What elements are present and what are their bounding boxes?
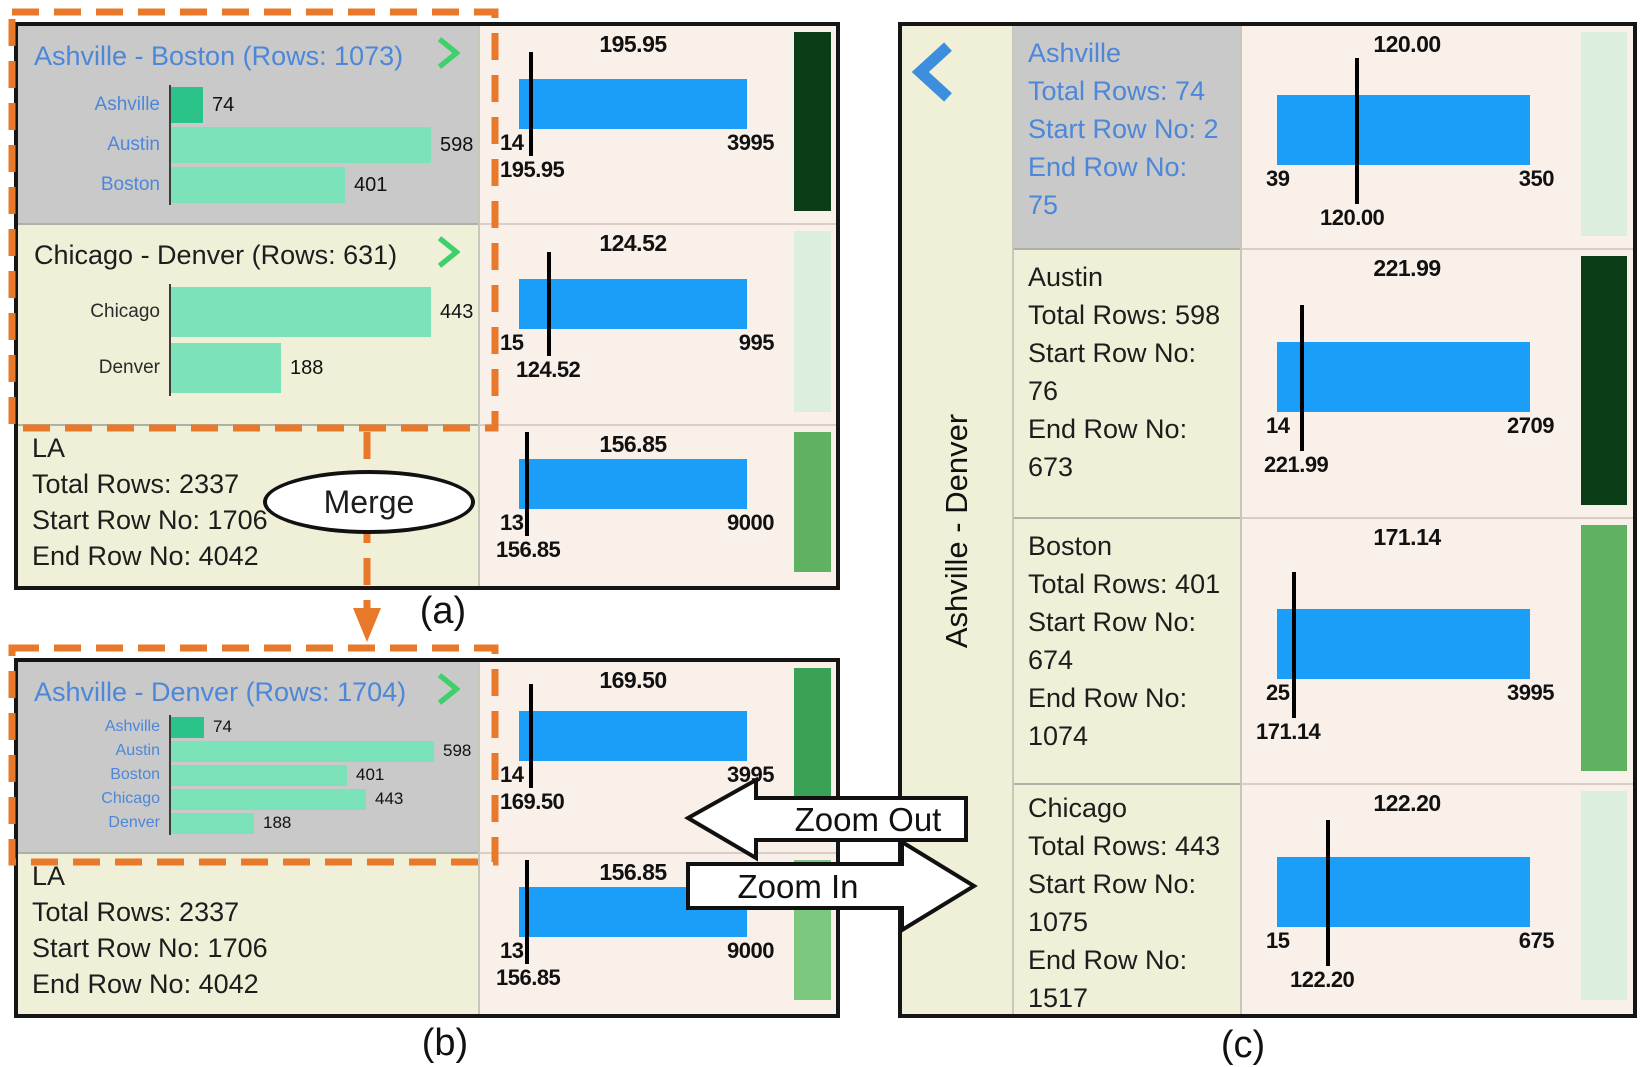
figure-label-c: (c) xyxy=(1198,1024,1288,1067)
median-line xyxy=(529,684,533,788)
bar xyxy=(171,741,434,762)
density-strip xyxy=(794,432,831,572)
bar xyxy=(171,343,281,393)
city-end-row-label: End Row No: xyxy=(1028,148,1234,186)
range-bar xyxy=(519,887,747,937)
group-header[interactable]: Ashville - Denver (Rows: 1704) xyxy=(18,662,478,713)
density-strip xyxy=(794,231,831,412)
city-end-row-label: End Row No: xyxy=(1028,679,1234,717)
bar-value: 598 xyxy=(440,134,473,157)
merge-annotation: Merge xyxy=(263,470,475,534)
panel-b: Ashville - Denver (Rows: 1704) Ashville … xyxy=(14,658,840,1018)
density-strip xyxy=(1581,525,1627,771)
range-bar xyxy=(1277,95,1530,165)
bar-value: 401 xyxy=(356,765,384,785)
city-end-row-value: 673 xyxy=(1028,448,1234,486)
city-total-rows: Total Rows: 598 xyxy=(1028,296,1234,334)
bar-row: Chicago 443 xyxy=(18,787,478,811)
bar-row: Austin 598 xyxy=(18,739,478,763)
chevron-right-icon[interactable] xyxy=(436,36,460,77)
panel-b-group-list: Ashville - Denver (Rows: 1704) Ashville … xyxy=(18,662,478,1014)
bar-label: Denver xyxy=(18,357,169,379)
range-bar xyxy=(519,279,747,329)
panel-c-city-list: Ashville Total Rows: 74 Start Row No: 2 … xyxy=(1012,26,1240,1014)
min-value: 14 xyxy=(1266,413,1289,439)
city-row-austin[interactable]: Austin Total Rows: 598 Start Row No: 76 … xyxy=(1014,248,1240,517)
city-name: Boston xyxy=(1028,527,1234,565)
median-value: 169.50 xyxy=(500,789,564,815)
figure-label-a: (a) xyxy=(398,590,488,633)
bar-label: Austin xyxy=(18,742,169,760)
bar-label: Chicago xyxy=(18,301,169,323)
panel-c-nav-column: Ashville - Denver xyxy=(902,26,1012,1014)
bar-row: Boston 401 xyxy=(18,763,478,787)
city-end-row-value: 75 xyxy=(1028,186,1234,224)
bar-label: Chicago xyxy=(18,790,169,808)
bar-label: Boston xyxy=(18,174,169,196)
city-start-row-label: Start Row No: xyxy=(1028,865,1234,903)
city-name: Ashville xyxy=(1028,34,1234,72)
bar-row: Denver 188 xyxy=(18,811,478,835)
max-value: 3995 xyxy=(710,762,774,788)
max-value: 9000 xyxy=(710,938,774,964)
summary-city: LA xyxy=(32,430,478,466)
city-start-row-value: 1075 xyxy=(1028,903,1234,941)
group-title: Ashville - Denver (Rows: 1704) xyxy=(34,677,406,708)
bar-value: 188 xyxy=(290,357,323,380)
city-start-row-value: 674 xyxy=(1028,641,1234,679)
bar-label: Ashville xyxy=(18,718,169,736)
max-value: 9000 xyxy=(710,510,774,536)
bar-value: 401 xyxy=(354,174,387,197)
panel-c: Ashville - Denver Ashville Total Rows: 7… xyxy=(898,22,1637,1018)
city-name: Chicago xyxy=(1028,789,1234,827)
density-strip xyxy=(1581,791,1627,1000)
range-chart-cell: 156.85 13 9000 156.85 xyxy=(480,852,836,1012)
max-value: 3995 xyxy=(710,130,774,156)
density-strip xyxy=(1581,256,1627,505)
bar xyxy=(171,127,431,163)
median-value: 221.99 xyxy=(1264,452,1328,478)
city-start-row-label: Start Row No: xyxy=(1028,603,1234,641)
range-chart-cell: 120.00 39 350 120.00 xyxy=(1242,26,1633,248)
bar-value: 443 xyxy=(440,301,473,324)
bar-row: Ashville 74 xyxy=(18,85,478,125)
city-start-row: Start Row No: 2 xyxy=(1028,110,1234,148)
range-bar xyxy=(1277,342,1530,412)
median-line xyxy=(525,860,529,964)
density-strip xyxy=(794,860,831,1000)
city-name: Austin xyxy=(1028,258,1234,296)
bar xyxy=(171,87,203,123)
max-value: 350 xyxy=(1490,166,1554,192)
range-chart-cell: 124.52 15 995 124.52 xyxy=(480,223,836,424)
median-value: 156.85 xyxy=(496,537,560,563)
chart-top-value: 169.50 xyxy=(480,667,786,694)
median-value: 195.95 xyxy=(500,157,564,183)
chart-top-value: 124.52 xyxy=(480,230,786,257)
merge-label: Merge xyxy=(324,484,415,521)
bar xyxy=(171,765,347,786)
city-start-row-value: 76 xyxy=(1028,372,1234,410)
max-value: 995 xyxy=(710,330,774,356)
range-bar xyxy=(519,79,747,129)
median-line xyxy=(1326,820,1330,966)
median-value: 156.85 xyxy=(496,965,560,991)
range-bar xyxy=(1277,857,1530,927)
min-value: 15 xyxy=(500,330,523,356)
range-chart-cell: 169.50 14 3995 169.50 xyxy=(480,662,836,852)
city-total-rows: Total Rows: 443 xyxy=(1028,827,1234,865)
range-bar xyxy=(519,711,747,761)
density-strip xyxy=(1581,32,1627,236)
chevron-right-icon[interactable] xyxy=(436,672,460,713)
summary-total-rows: Total Rows: 2337 xyxy=(32,894,478,930)
bar xyxy=(171,717,204,738)
min-value: 39 xyxy=(1266,166,1289,192)
city-total-rows: Total Rows: 74 xyxy=(1028,72,1234,110)
bar-value: 598 xyxy=(443,741,471,761)
panel-b-range-charts: 169.50 14 3995 169.50 156.85 13 9000 156… xyxy=(478,662,836,1014)
bar-row: Ashville 74 xyxy=(18,715,478,739)
range-chart-cell: 156.85 13 9000 156.85 xyxy=(480,424,836,584)
bar-label: Austin xyxy=(18,134,169,156)
group-row-la[interactable]: LA Total Rows: 2337 Start Row No: 1706 E… xyxy=(18,852,478,1012)
min-value: 13 xyxy=(500,938,523,964)
summary-end-row: End Row No: 4042 xyxy=(32,538,478,574)
bar xyxy=(171,287,431,337)
city-total-rows: Total Rows: 401 xyxy=(1028,565,1234,603)
median-line xyxy=(1300,305,1304,451)
group-header[interactable]: Chicago - Denver (Rows: 631) xyxy=(18,225,478,278)
bar-row: Boston 401 xyxy=(18,165,478,205)
group-header[interactable]: Ashville - Boston (Rows: 1073) xyxy=(18,26,478,79)
median-value: 124.52 xyxy=(516,357,580,383)
chart-top-value: 120.00 xyxy=(1242,31,1572,58)
median-line xyxy=(1292,572,1296,718)
bar-value: 74 xyxy=(212,94,234,117)
city-end-row-value: 1074 xyxy=(1028,717,1234,755)
range-chart-cell: 221.99 14 2709 221.99 xyxy=(1242,248,1633,517)
group-vertical-title: Ashville - Denver xyxy=(939,414,975,648)
city-row-chicago[interactable]: Chicago Total Rows: 443 Start Row No: 10… xyxy=(1014,783,1240,1012)
min-value: 14 xyxy=(500,762,523,788)
city-end-row-label: End Row No: xyxy=(1028,941,1234,979)
median-line xyxy=(547,252,551,356)
min-value: 15 xyxy=(1266,928,1289,954)
back-chevron-icon[interactable] xyxy=(912,42,954,107)
city-end-row-value: 1517 xyxy=(1028,979,1234,1012)
bar xyxy=(171,789,366,810)
group-row-ashville-denver[interactable]: Ashville - Denver (Rows: 1704) Ashville … xyxy=(18,662,478,852)
group-row-chicago-denver[interactable]: Chicago - Denver (Rows: 631) Chicago 443… xyxy=(18,223,478,424)
median-value: 171.14 xyxy=(1256,719,1320,745)
summary-start-row: Start Row No: 1706 xyxy=(32,930,478,966)
figure-label-b: (b) xyxy=(400,1022,490,1065)
city-bar-chart: Ashville 74 Austin 598 Boston 401 Chicag… xyxy=(18,715,478,835)
summary-city: LA xyxy=(32,858,478,894)
median-value: 120.00 xyxy=(1320,205,1384,231)
range-chart-cell: 122.20 15 675 122.20 xyxy=(1242,783,1633,1012)
bar-label: Ashville xyxy=(18,94,169,116)
median-line xyxy=(1355,58,1359,204)
bar-value: 74 xyxy=(213,717,232,737)
density-strip xyxy=(794,668,831,840)
bar xyxy=(171,167,345,203)
bar-row: Denver 188 xyxy=(18,340,478,396)
summary-end-row: End Row No: 4042 xyxy=(32,966,478,1002)
chevron-right-icon[interactable] xyxy=(436,235,460,276)
panel-a-range-charts: 195.95 14 3995 195.95 124.52 15 995 124.… xyxy=(478,26,836,586)
min-value: 25 xyxy=(1266,680,1289,706)
range-chart-cell: 171.14 25 3995 171.14 xyxy=(1242,517,1633,783)
max-value: 3995 xyxy=(1490,680,1554,706)
range-chart-cell: 195.95 14 3995 195.95 xyxy=(480,26,836,223)
min-value: 13 xyxy=(500,510,523,536)
merge-flow-arrowhead-icon xyxy=(353,608,381,642)
group-row-ashville-boston[interactable]: Ashville - Boston (Rows: 1073) Ashville … xyxy=(18,26,478,223)
bar-label: Denver xyxy=(18,814,169,832)
median-line xyxy=(529,52,533,156)
panel-c-range-charts: 120.00 39 350 120.00 221.99 14 2709 221.… xyxy=(1240,26,1633,1014)
median-value: 122.20 xyxy=(1290,967,1354,993)
bar-row: Austin 598 xyxy=(18,125,478,165)
bar xyxy=(171,813,254,834)
bar-row: Chicago 443 xyxy=(18,284,478,340)
bar-label: Boston xyxy=(18,766,169,784)
chart-top-value: 195.95 xyxy=(480,31,786,58)
range-bar xyxy=(519,459,747,509)
city-bar-chart: Ashville 74 Austin 598 Boston 401 xyxy=(18,85,478,205)
chart-top-value: 221.99 xyxy=(1242,255,1572,282)
city-row-boston[interactable]: Boston Total Rows: 401 Start Row No: 674… xyxy=(1014,517,1240,783)
group-title: Chicago - Denver (Rows: 631) xyxy=(34,240,397,271)
max-value: 675 xyxy=(1490,928,1554,954)
city-start-row-label: Start Row No: xyxy=(1028,334,1234,372)
chart-top-value: 171.14 xyxy=(1242,524,1572,551)
range-bar xyxy=(1277,609,1530,679)
city-row-ashville[interactable]: Ashville Total Rows: 74 Start Row No: 2 … xyxy=(1014,26,1240,248)
group-title: Ashville - Boston (Rows: 1073) xyxy=(34,41,403,72)
density-strip xyxy=(794,32,831,211)
min-value: 14 xyxy=(500,130,523,156)
chart-top-value: 122.20 xyxy=(1242,790,1572,817)
city-end-row-label: End Row No: xyxy=(1028,410,1234,448)
city-bar-chart: Chicago 443 Denver 188 xyxy=(18,284,478,396)
bar-value: 188 xyxy=(263,813,291,833)
bar-value: 443 xyxy=(375,789,403,809)
median-line xyxy=(525,432,529,536)
max-value: 2709 xyxy=(1490,413,1554,439)
